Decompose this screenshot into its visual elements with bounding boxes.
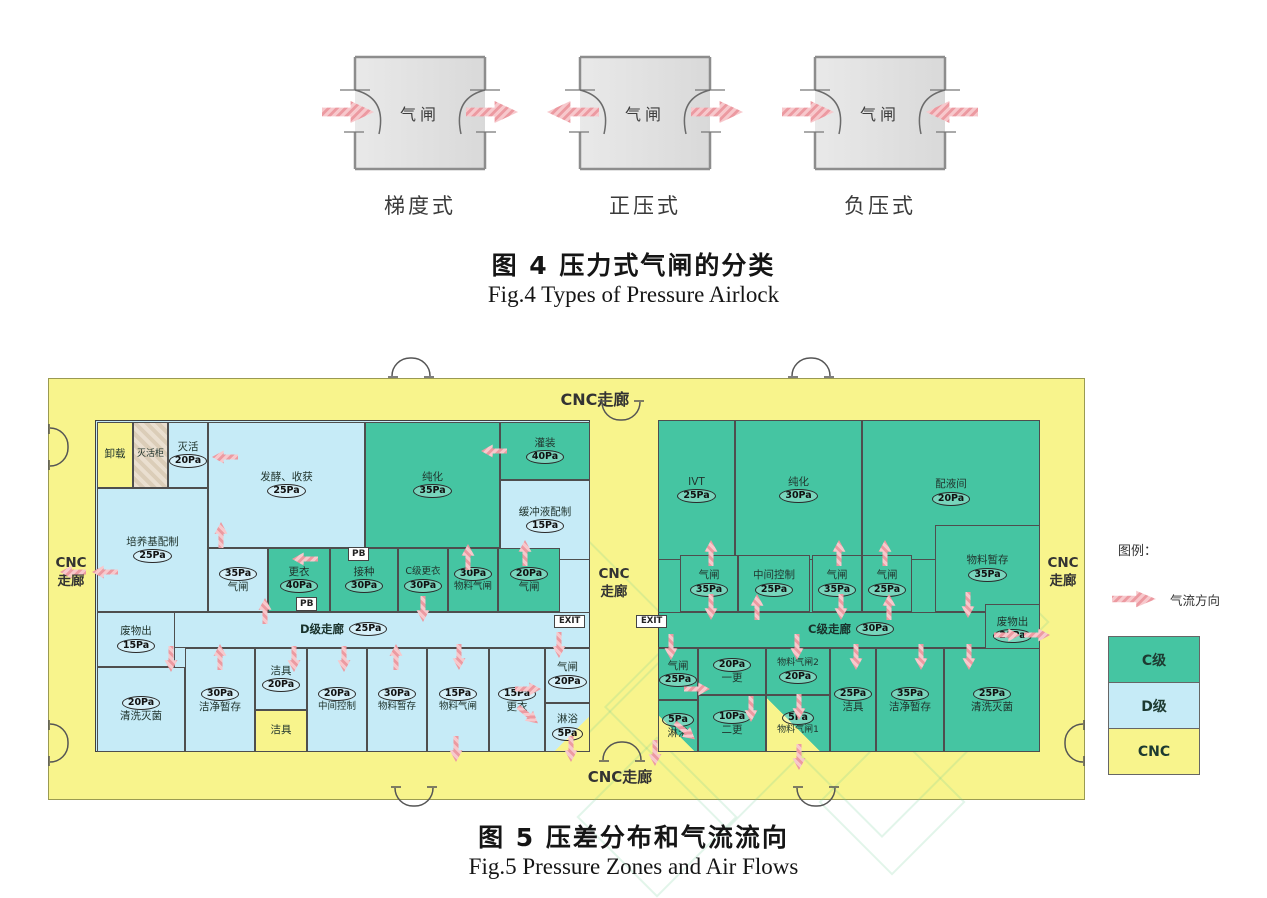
airlock-room-label: 气闸	[400, 105, 440, 124]
room-gowning-15: 15Pa 更衣	[489, 648, 545, 752]
room-label: 物料气闸	[439, 702, 477, 712]
room-label: 清洗灭菌	[971, 702, 1013, 714]
room-label: 培养基配制	[126, 537, 179, 549]
room-washing-sterilization-right: 25Pa 清洗灭菌	[944, 648, 1040, 752]
figure5-caption-en: Fig.5 Pressure Zones and Air Flows	[0, 854, 1267, 880]
corridor-pressure: 30Pa	[856, 622, 894, 636]
room-pressure: 25Pa	[755, 583, 793, 597]
room-clean-storage-right: 35Pa 洁净暂存	[876, 648, 944, 752]
room-pressure: 30Pa	[201, 687, 239, 701]
room-label: 气闸	[668, 661, 689, 673]
room-pressure: 35Pa	[891, 687, 929, 701]
double-door-icon	[48, 720, 72, 766]
c-corridor-label: C级走廊 30Pa	[808, 621, 894, 637]
room-washing-sterilization-left: 20Pa 清洗灭菌	[97, 667, 185, 752]
room-label: 洁净暂存	[199, 702, 241, 714]
room-label: 发酵、收获	[260, 472, 313, 484]
room-shower-left: 淋浴 5Pa	[545, 703, 590, 752]
figure5-caption-cn: 图 5 压差分布和气流流向	[0, 818, 1267, 854]
room-pressure: 25Pa	[677, 489, 715, 503]
room-label: 洁具	[843, 702, 864, 714]
airlock-room-label: 气闸	[625, 105, 665, 124]
room-cleaning-tools-cnc: 洁具	[255, 710, 307, 752]
room-label: 物料暂存	[967, 555, 1009, 567]
airlock-positive: 气闸 正压式	[555, 52, 735, 222]
room-label: 洁具	[271, 725, 292, 737]
room-purification-left: 纯化 35Pa	[365, 422, 500, 548]
room-ivt: IVT 25Pa	[658, 420, 735, 560]
room-material-airlock-30: 30Pa 物料气闸	[448, 548, 498, 612]
room-pressure: 25Pa	[868, 583, 906, 597]
room-pressure: 30Pa	[404, 579, 442, 593]
legend-zone-d: D级	[1108, 682, 1200, 729]
double-door-icon	[788, 354, 834, 378]
room-label: 洁净暂存	[889, 702, 931, 714]
d-corridor-label: D级走廊 25Pa	[300, 621, 387, 637]
room-label: 灭活柜	[137, 450, 164, 460]
room-label: C级更衣	[405, 567, 440, 577]
double-door-icon	[388, 354, 434, 378]
room-label: 洁具	[271, 666, 292, 678]
room-pressure: 20Pa	[318, 687, 356, 701]
room-label: IVT	[688, 477, 705, 489]
double-door-icon	[599, 738, 645, 762]
legend-zone-cnc: CNC	[1108, 728, 1200, 775]
figure4-diagrams: 气闸 梯度式 气闸 正压式 气闸 负压式	[330, 52, 980, 222]
room-pressure: 30Pa	[454, 567, 492, 581]
room-waste-out-left: 废物出 15Pa	[97, 612, 175, 667]
room-airlock-20-band: 20Pa 气闸	[498, 548, 560, 612]
room-pressure: 20Pa	[169, 454, 207, 468]
room-pressure: 30Pa	[345, 579, 383, 593]
room-medium-prep: 培养基配制 25Pa	[97, 488, 208, 612]
corridor-label-bottom: CNC走廊	[565, 768, 675, 788]
room-pressure: 20Pa	[779, 670, 817, 684]
room-label: 接种	[354, 567, 375, 579]
room-pressure: 30Pa	[378, 687, 416, 701]
room-pressure: 25Pa	[973, 687, 1011, 701]
room-airlock-25-bottom: 气闸 25Pa	[658, 648, 698, 700]
room-pressure: 20Pa	[510, 567, 548, 581]
room-inprocess-control-left: 20Pa 中间控制	[307, 648, 367, 752]
room-pressure: 15Pa	[117, 639, 155, 653]
room-pressure: 25Pa	[133, 549, 171, 563]
exit-sign: EXIT	[554, 615, 585, 628]
room-pressure: 20Pa	[122, 696, 160, 710]
legend-zone-c: C级	[1108, 636, 1200, 683]
room-label: 灌装	[535, 438, 556, 450]
room-fermentation-harvest: 发酵、收获 25Pa	[208, 422, 365, 548]
room-label: 灭活	[178, 442, 199, 454]
figure4-caption-cn: 图 4 压力式气闸的分类	[0, 246, 1267, 282]
room-label: 配液间	[935, 479, 967, 491]
room-label: 物料暂存	[378, 702, 416, 712]
room-pressure: 25Pa	[834, 687, 872, 701]
room-label: 废物出	[120, 626, 152, 638]
room-inactivation: 灭活 20Pa	[168, 422, 208, 488]
corridor-pressure: 25Pa	[349, 622, 387, 636]
room-second-change: 10Pa 二更	[698, 695, 766, 752]
legend-flow-label: 气流方向	[1170, 590, 1220, 609]
airlock-gradient: 气闸 梯度式	[330, 52, 510, 222]
room-label: 卸载	[105, 449, 126, 461]
room-inprocess-control-right: 中间控制 25Pa	[738, 555, 810, 612]
corridor-name: C级走廊	[808, 621, 851, 637]
airlock-room-label: 气闸	[860, 105, 900, 124]
airlock-type-label: 梯度式	[330, 190, 510, 220]
room-label: 废物出	[997, 617, 1029, 629]
room-pressure: 20Pa	[262, 678, 300, 692]
room-label: 纯化	[422, 472, 443, 484]
corridor-name: D级走廊	[300, 621, 344, 637]
room-pressure: 35Pa	[818, 583, 856, 597]
room-label: 纯化	[788, 477, 809, 489]
room-label: 一更	[722, 673, 743, 685]
room-purification-right: 纯化 30Pa	[735, 420, 862, 560]
room-first-change: 20Pa 一更	[698, 648, 766, 695]
double-door-icon	[1061, 720, 1085, 766]
room-label: 气闸	[877, 570, 898, 582]
room-pressure: 15Pa	[526, 519, 564, 533]
double-door-icon	[48, 424, 72, 470]
room-label: 二更	[722, 725, 743, 737]
exit-sign: EXIT	[636, 615, 667, 628]
room-airlock-20-bottom: 气闸 20Pa	[545, 648, 590, 703]
room-pressure: 35Pa	[219, 567, 257, 581]
airlock-type-label: 正压式	[555, 190, 735, 220]
room-label: 中间控制	[753, 570, 795, 582]
double-door-icon	[793, 786, 839, 810]
corridor-label-right: CNC 走廊	[1042, 555, 1084, 590]
airlock-negative: 气闸 负压式	[790, 52, 970, 222]
room-label: 更衣	[289, 567, 310, 579]
room-label: 气闸	[557, 662, 578, 674]
room-label: 缓冲液配制	[519, 507, 572, 519]
room-label: 气闸	[827, 570, 848, 582]
room-pressure: 35Pa	[968, 568, 1006, 582]
room-inactivation-cabinet: 灭活柜	[133, 422, 168, 488]
room-label: 物料气闸2	[777, 659, 819, 669]
room-airlock-35: 35Pa 气闸	[208, 548, 268, 612]
room-label: 气闸	[699, 570, 720, 582]
pass-box-label: PB	[296, 597, 317, 611]
legend-title: 图例：	[1118, 540, 1157, 559]
room-unload: 卸载	[97, 422, 133, 488]
double-door-icon	[598, 400, 644, 424]
room-pressure: 20Pa	[548, 675, 586, 689]
room-pressure: 5Pa	[552, 727, 584, 741]
room-pressure: 15Pa	[439, 687, 477, 701]
pass-box-label: PB	[348, 547, 369, 561]
room-filling: 灌装 40Pa	[500, 422, 590, 480]
room-label: 中间控制	[318, 702, 356, 712]
room-label: 清洗灭菌	[120, 711, 162, 723]
room-material-storage-right: 物料暂存 35Pa	[935, 525, 1040, 612]
room-pressure: 10Pa	[713, 710, 751, 724]
room-cleaning-tools-left: 洁具 20Pa	[255, 648, 307, 710]
figure4-caption-en: Fig.4 Types of Pressure Airlock	[0, 282, 1267, 308]
room-label: 物料气闸	[454, 582, 492, 592]
room-label: 物料气闸1	[777, 726, 819, 736]
corridor-label-middle: CNC 走廊	[594, 566, 634, 601]
airlock-type-label: 负压式	[790, 190, 970, 220]
room-pressure: 40Pa	[280, 579, 318, 593]
double-door-icon	[391, 786, 437, 810]
room-pressure: 35Pa	[413, 484, 451, 498]
room-pressure: 30Pa	[779, 489, 817, 503]
room-label: 气闸	[519, 582, 540, 594]
room-pressure: 25Pa	[267, 484, 305, 498]
room-pressure: 25Pa	[659, 673, 697, 687]
room-pressure: 20Pa	[932, 492, 970, 506]
room-pressure: 40Pa	[526, 450, 564, 464]
room-pressure: 20Pa	[713, 658, 751, 672]
room-label: 气闸	[228, 582, 249, 594]
room-label: 淋浴	[557, 714, 578, 726]
legend-airflow-arrow-icon	[1112, 590, 1156, 608]
